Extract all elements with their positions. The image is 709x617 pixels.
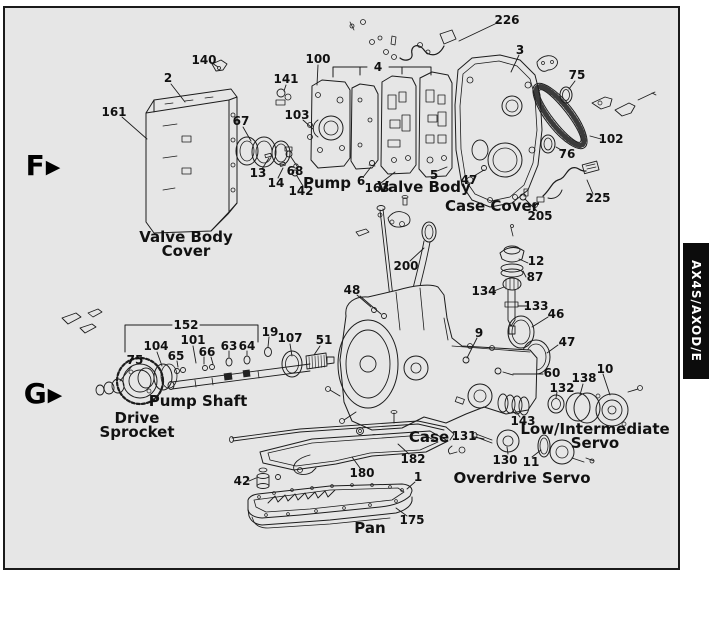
side-tab: AX4S/AXOD/E	[683, 243, 709, 379]
exploded-view-art	[0, 0, 709, 617]
side-tab-label: AX4S/AXOD/E	[689, 260, 703, 362]
manual-page: 2261401002141437516110367102761314681426…	[0, 0, 709, 617]
